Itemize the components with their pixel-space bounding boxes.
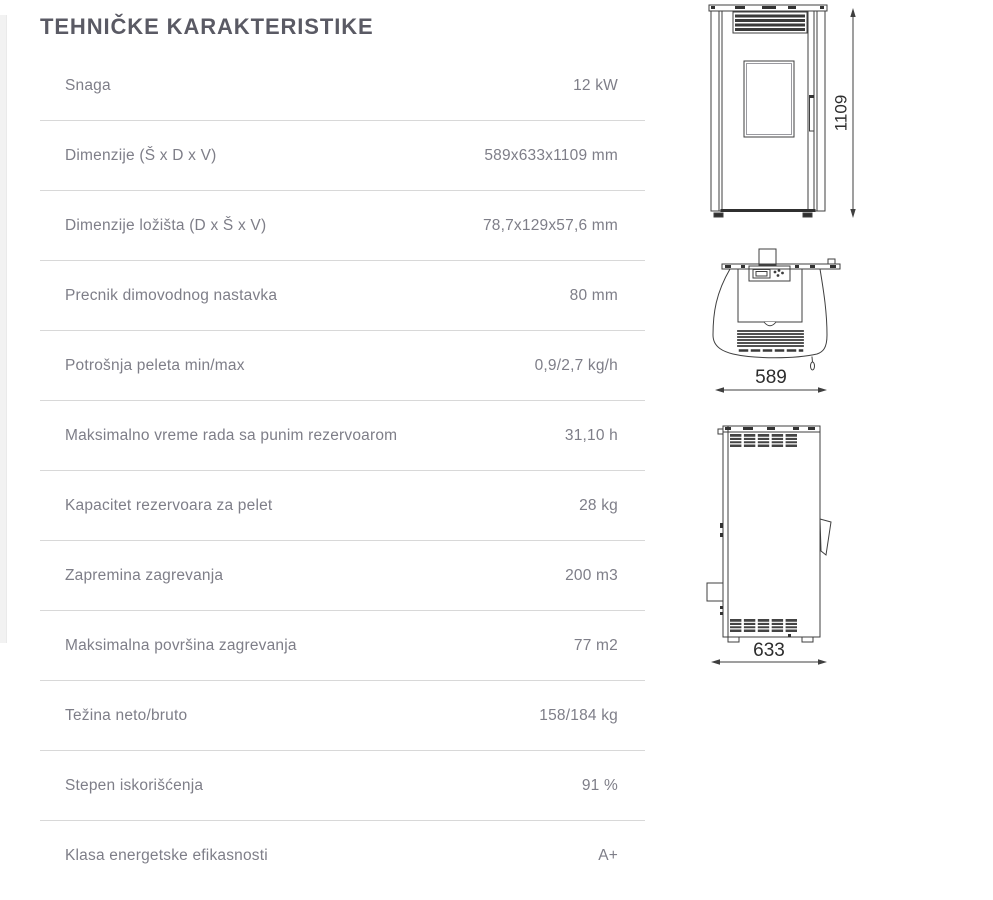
spec-row-dimenzije: Dimenzije (Š x D x V) 589x633x1109 mm bbox=[40, 121, 645, 191]
rear-panel-step bbox=[718, 429, 723, 434]
spec-section: TEHNIČKE KARAKTERISTIKE Snaga 12 kW Dime… bbox=[40, 14, 645, 891]
spec-value: 589x633x1109 mm bbox=[484, 147, 645, 165]
spec-label: Kapacitet rezervoara za pelet bbox=[40, 497, 272, 515]
spec-label: Klasa energetske efikasnosti bbox=[40, 847, 268, 865]
side-body-outline bbox=[723, 426, 820, 637]
spec-label: Dimenzije ložišta (D x Š x V) bbox=[40, 217, 266, 235]
spec-row-energetska-klasa: Klasa energetske efikasnosti A+ bbox=[40, 821, 645, 891]
stove-foot bbox=[803, 213, 812, 217]
top-vent-slats bbox=[738, 331, 803, 346]
stove-window bbox=[744, 61, 794, 137]
spec-value: 200 m3 bbox=[565, 567, 645, 585]
spec-row-precnik: Precnik dimovodnog nastavka 80 mm bbox=[40, 261, 645, 331]
smoke-outlet bbox=[707, 583, 723, 601]
spec-value: 77 m2 bbox=[574, 637, 645, 655]
spec-label: Zapremina zagrevanja bbox=[40, 567, 223, 585]
spec-value: A+ bbox=[598, 847, 645, 865]
rear-edge-fittings bbox=[720, 427, 815, 637]
arrow-up-icon bbox=[850, 8, 855, 17]
arrow-down-icon bbox=[850, 209, 855, 218]
width-dimension-label: 589 bbox=[755, 367, 787, 388]
side-bottom-grille bbox=[730, 619, 797, 632]
side-top-grille bbox=[730, 434, 797, 447]
height-dimension: 1109 bbox=[831, 8, 855, 218]
width-dimension: 589 bbox=[715, 367, 827, 393]
grill-slats bbox=[735, 15, 805, 32]
depth-dimension: 633 bbox=[711, 640, 827, 665]
spec-value: 91 % bbox=[582, 777, 645, 795]
top-view-drawing: 589 bbox=[700, 245, 870, 400]
spec-row-zapremina: Zapremina zagrevanja 200 m3 bbox=[40, 541, 645, 611]
side-view-drawing: 633 bbox=[695, 415, 870, 675]
spec-label: Precnik dimovodnog nastavka bbox=[40, 287, 277, 305]
pull-tab bbox=[811, 357, 815, 370]
spec-row-dimenzije-lozista: Dimenzije ložišta (D x Š x V) 78,7x129x5… bbox=[40, 191, 645, 261]
spec-row-vreme-rada: Maksimalno vreme rada sa punim rezervoar… bbox=[40, 401, 645, 471]
spec-value: 0,9/2,7 kg/h bbox=[535, 357, 645, 375]
spec-value: 28 kg bbox=[579, 497, 645, 515]
arrow-left-icon bbox=[715, 387, 724, 392]
spec-label: Stepen iskorišćenja bbox=[40, 777, 203, 795]
spec-row-iskoriscenje: Stepen iskorišćenja 91 % bbox=[40, 751, 645, 821]
arrow-left-icon bbox=[711, 659, 720, 664]
depth-dimension-label: 633 bbox=[753, 640, 785, 661]
spec-value: 78,7x129x57,6 mm bbox=[483, 217, 645, 235]
top-rear-fitting bbox=[828, 259, 835, 264]
stove-foot bbox=[714, 213, 723, 217]
stove-foot bbox=[728, 637, 739, 642]
top-body-outline bbox=[713, 269, 827, 358]
spec-value: 12 kW bbox=[573, 77, 645, 95]
page-edge-strip bbox=[0, 15, 7, 643]
spec-row-tezina: Težina neto/bruto 158/184 kg bbox=[40, 681, 645, 751]
spec-label: Maksimalna površina zagrevanja bbox=[40, 637, 297, 655]
side-door-handle bbox=[820, 519, 831, 555]
spec-row-snaga: Snaga 12 kW bbox=[40, 51, 645, 121]
control-panel bbox=[749, 266, 790, 281]
page-title: TEHNIČKE KARAKTERISTIKE bbox=[40, 14, 645, 40]
spec-label: Snaga bbox=[40, 77, 111, 95]
chimney-pipe bbox=[759, 249, 776, 265]
spec-row-potrosnja: Potrošnja peleta min/max 0,9/2,7 kg/h bbox=[40, 331, 645, 401]
spec-label: Težina neto/bruto bbox=[40, 707, 187, 725]
spec-row-kapacitet: Kapacitet rezervoara za pelet 28 kg bbox=[40, 471, 645, 541]
spec-label: Potrošnja peleta min/max bbox=[40, 357, 245, 375]
height-dimension-label: 1109 bbox=[831, 95, 850, 132]
front-view-drawing: 1109 bbox=[700, 0, 870, 235]
spec-row-povrsina: Maksimalna površina zagrevanja 77 m2 bbox=[40, 611, 645, 681]
stove-foot bbox=[802, 637, 813, 642]
spec-value: 80 mm bbox=[570, 287, 645, 305]
spec-label: Maksimalno vreme rada sa punim rezervoar… bbox=[40, 427, 397, 445]
spec-table: Snaga 12 kW Dimenzije (Š x D x V) 589x63… bbox=[40, 51, 645, 891]
arrow-right-icon bbox=[818, 387, 827, 392]
arrow-right-icon bbox=[818, 659, 827, 664]
door-handle bbox=[810, 97, 815, 131]
spec-value: 31,10 h bbox=[565, 427, 645, 445]
lid-notch bbox=[764, 322, 776, 326]
spec-label: Dimenzije (Š x D x V) bbox=[40, 147, 216, 165]
spec-value: 158/184 kg bbox=[539, 707, 645, 725]
